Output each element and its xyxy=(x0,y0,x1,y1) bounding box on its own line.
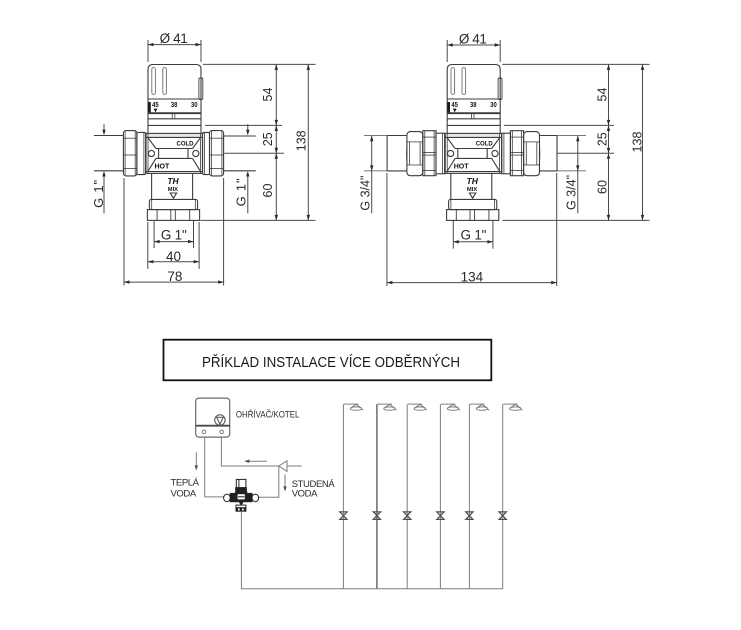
svg-text:54: 54 xyxy=(261,88,275,102)
svg-text:40: 40 xyxy=(166,249,181,264)
svg-text:VODA: VODA xyxy=(171,488,197,499)
svg-text:G 3/4": G 3/4" xyxy=(564,175,578,210)
svg-text:60: 60 xyxy=(261,184,275,198)
svg-text:60: 60 xyxy=(595,180,609,194)
svg-text:54: 54 xyxy=(595,88,609,102)
svg-text:TEPLÁ: TEPLÁ xyxy=(171,478,200,489)
svg-text:PŘÍKLAD INSTALACE VÍCE ODBĚRNÝ: PŘÍKLAD INSTALACE VÍCE ODBĚRNÝCH xyxy=(202,354,460,371)
svg-text:OHŘÍVAČ/KOTEL: OHŘÍVAČ/KOTEL xyxy=(236,410,300,420)
svg-text:138: 138 xyxy=(294,130,308,151)
svg-text:134: 134 xyxy=(461,270,484,285)
svg-text:G 1": G 1" xyxy=(461,227,487,242)
svg-text:VODA: VODA xyxy=(292,488,318,499)
svg-text:G 1": G 1" xyxy=(161,227,187,242)
svg-text:G 1": G 1" xyxy=(233,178,248,207)
svg-text:25: 25 xyxy=(261,132,275,146)
svg-text:78: 78 xyxy=(167,269,182,284)
svg-text:Ø 41: Ø 41 xyxy=(459,32,487,47)
svg-text:Ø 41: Ø 41 xyxy=(160,31,188,46)
svg-text:138: 138 xyxy=(630,132,644,153)
svg-text:G 3/4": G 3/4" xyxy=(358,176,372,211)
svg-text:G 1": G 1" xyxy=(91,179,106,208)
svg-text:25: 25 xyxy=(595,132,609,146)
